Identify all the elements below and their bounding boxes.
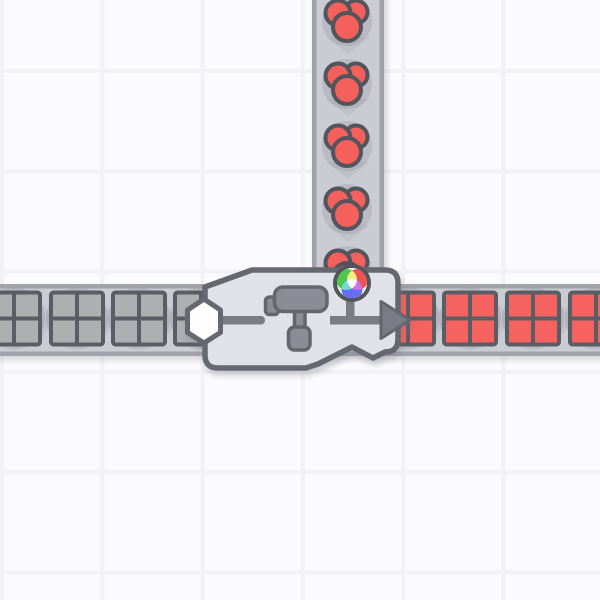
belt-item-berry-cluster (322, 59, 372, 109)
belt-item-gray-square (108, 288, 170, 350)
input-pipe (217, 316, 265, 325)
painter-machine[interactable] (188, 266, 411, 368)
color-wheel-indicator (335, 266, 369, 300)
belt-item-red-square (439, 288, 501, 350)
output-pipe (330, 316, 382, 325)
game-canvas[interactable] (0, 0, 600, 600)
belt-edge (312, 0, 317, 300)
belt-item-gray-square (46, 288, 108, 350)
belt-edge (380, 0, 385, 300)
belt-item-red-square (565, 288, 600, 350)
factory-scene (0, 0, 600, 600)
belt-item-red-square (502, 288, 564, 350)
input-hexagon-icon (188, 299, 221, 343)
belt-item-berry-cluster (322, 121, 372, 171)
belt-item-berry-cluster (322, 184, 372, 234)
belt-item-gray-square (0, 288, 45, 350)
